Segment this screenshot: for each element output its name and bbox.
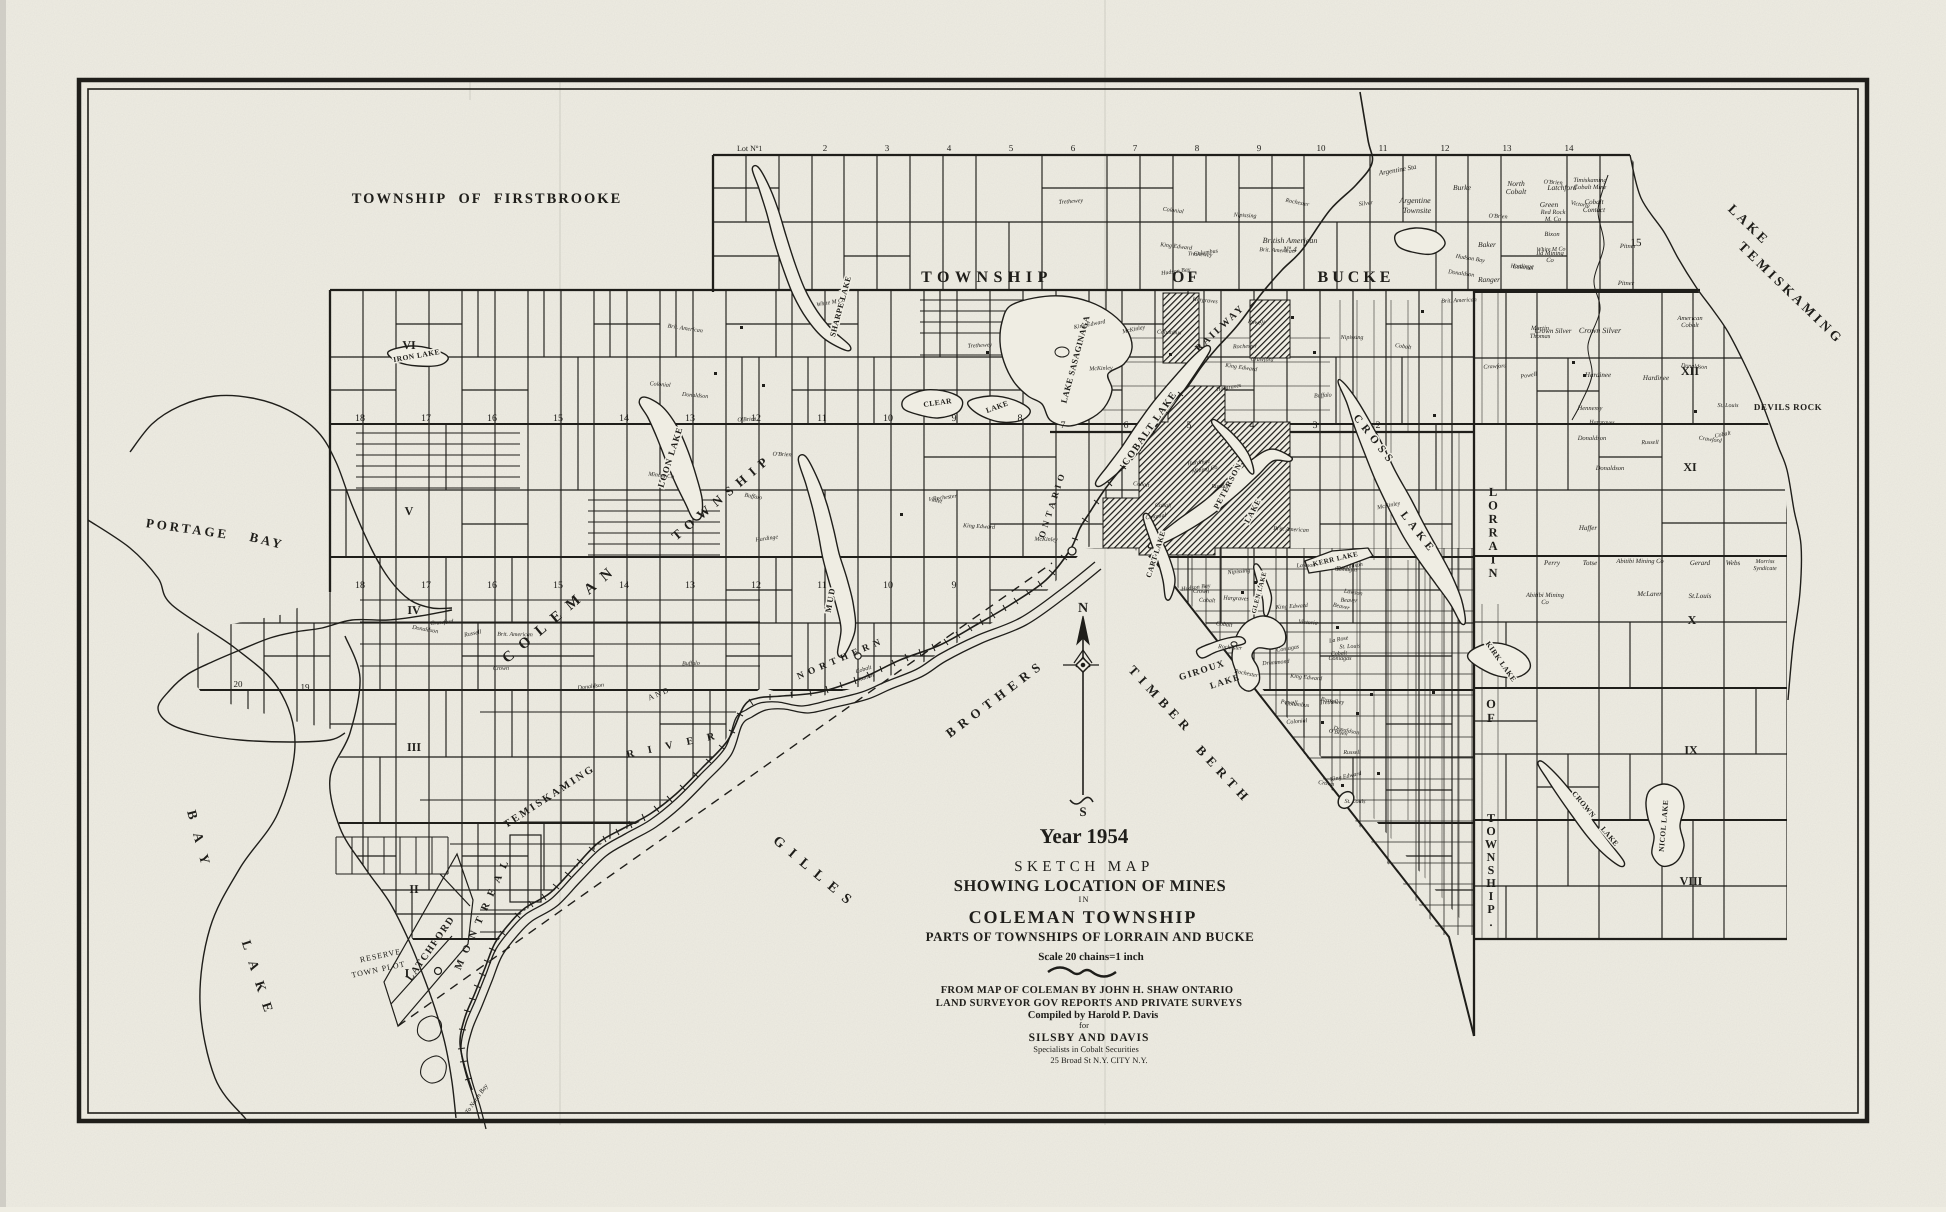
svg-text:18: 18 — [355, 580, 365, 591]
svg-text:Co: Co — [1541, 599, 1549, 606]
svg-text:F: F — [1487, 711, 1495, 725]
svg-text:4: 4 — [947, 143, 952, 153]
svg-text:S: S — [1488, 863, 1495, 877]
svg-text:Haffer: Haffer — [1578, 524, 1598, 532]
svg-text:Specialists in Cobalt Securiti: Specialists in Cobalt Securities — [1033, 1044, 1139, 1054]
svg-text:BUCKE: BUCKE — [1318, 269, 1395, 286]
svg-text:Morriss: Morriss — [1754, 559, 1775, 565]
svg-text:PARTS OF TOWNSHIPS OF LORRAIN: PARTS OF TOWNSHIPS OF LORRAIN AND BUCKE — [926, 929, 1255, 944]
svg-text:Gerard: Gerard — [1690, 559, 1711, 567]
svg-text:S: S — [1079, 804, 1086, 819]
svg-text:2: 2 — [1376, 420, 1381, 431]
svg-text:Co: Co — [1546, 257, 1554, 264]
svg-text:Donaldson: Donaldson — [1577, 435, 1607, 442]
svg-text:Lawson: Lawson — [1296, 563, 1316, 570]
svg-text:TOWNSHIP: TOWNSHIP — [921, 269, 1053, 286]
svg-text:Bixon: Bixon — [1544, 231, 1559, 238]
svg-text:5: 5 — [1187, 420, 1192, 431]
svg-text:SKETCH MAP: SKETCH MAP — [1014, 859, 1154, 875]
svg-text:Abitibi Mining: Abitibi Mining — [1525, 592, 1565, 599]
svg-text:Nº 4: Nº 4 — [1282, 245, 1297, 254]
svg-text:25 Broad St N.Y. CITY N.Y.: 25 Broad St N.Y. CITY N.Y. — [1050, 1055, 1147, 1065]
svg-text:Crawford: Crawford — [1483, 362, 1507, 370]
svg-text:Lot Nº1: Lot Nº1 — [737, 144, 762, 153]
svg-text:Scale 20 chains=1 inch: Scale 20 chains=1 inch — [1038, 951, 1144, 963]
svg-text:for: for — [1079, 1020, 1089, 1030]
svg-text:17: 17 — [421, 413, 431, 424]
svg-text:X: X — [1688, 613, 1697, 627]
svg-text:14: 14 — [619, 413, 629, 424]
svg-text:11: 11 — [817, 413, 827, 424]
svg-text:Cobalt: Cobalt — [1506, 187, 1527, 196]
svg-text:O: O — [1486, 697, 1496, 711]
svg-text:O'Brien: O'Brien — [737, 416, 756, 423]
svg-text:N: N — [1487, 850, 1496, 864]
svg-text:I: I — [1491, 553, 1496, 567]
svg-text:Rochester: Rochester — [1232, 343, 1258, 351]
svg-text:Pitner: Pitner — [1619, 243, 1637, 250]
svg-text:R: R — [1488, 526, 1498, 540]
svg-text:9: 9 — [952, 580, 957, 591]
svg-text:Argentine: Argentine — [1398, 196, 1431, 205]
svg-text:N: N — [1078, 601, 1088, 616]
svg-text:Contact: Contact — [1583, 206, 1606, 214]
svg-text:7: 7 — [1133, 143, 1138, 153]
svg-text:10: 10 — [883, 413, 893, 424]
svg-text:5: 5 — [1009, 143, 1014, 153]
svg-text:Compiled by Harold P. Davis: Compiled by Harold P. Davis — [1028, 1010, 1158, 1021]
svg-text:19: 19 — [301, 682, 311, 692]
svg-text:11: 11 — [817, 580, 827, 591]
svg-text:Buffalo: Buffalo — [1314, 391, 1332, 399]
svg-text:R: R — [1488, 512, 1498, 526]
svg-text:7: 7 — [1061, 420, 1066, 431]
svg-text:Pitner: Pitner — [1617, 280, 1635, 287]
svg-text:Baker: Baker — [1478, 240, 1496, 249]
svg-text:12: 12 — [751, 580, 761, 591]
svg-text:Latchford: Latchford — [1546, 183, 1577, 192]
svg-text:Year 1954: Year 1954 — [1040, 824, 1129, 848]
svg-text:Coniagas: Coniagas — [1328, 656, 1352, 662]
svg-text:McKinley: McKinley — [1088, 365, 1113, 373]
svg-text:M. Co: M. Co — [1544, 216, 1562, 223]
svg-text:Trethewey: Trethewey — [968, 341, 993, 349]
svg-text:Perry: Perry — [1543, 559, 1561, 567]
svg-text:Russell: Russell — [1342, 749, 1361, 756]
svg-text:16: 16 — [487, 413, 497, 424]
svg-text:II: II — [409, 882, 419, 896]
svg-text:SILSBY AND DAVIS: SILSBY AND DAVIS — [1029, 1032, 1150, 1044]
svg-text:Cobalt: Cobalt — [1584, 198, 1604, 206]
svg-text:British American: British American — [1263, 236, 1318, 245]
svg-text:COLEMAN TOWNSHIP: COLEMAN TOWNSHIP — [969, 907, 1198, 927]
svg-text:13: 13 — [1503, 143, 1513, 153]
svg-text:Hennessy: Hennessy — [1577, 405, 1603, 412]
svg-text:Webs: Webs — [1726, 559, 1741, 567]
svg-text:W: W — [1485, 837, 1497, 851]
svg-text:Syndicate: Syndicate — [1753, 565, 1777, 572]
svg-text:3: 3 — [1313, 420, 1318, 431]
svg-text:Coniagas: Coniagas — [1334, 567, 1358, 574]
svg-text:Townsite: Townsite — [1403, 206, 1432, 215]
svg-text:I: I — [405, 966, 410, 980]
svg-text:L: L — [1489, 485, 1497, 499]
svg-text:McLaren: McLaren — [1636, 590, 1663, 598]
svg-text:9: 9 — [952, 413, 957, 424]
svg-text:Crown Silver: Crown Silver — [1535, 327, 1572, 335]
svg-text:St. Louis: St. Louis — [1339, 643, 1361, 650]
svg-text:H: H — [1486, 876, 1496, 890]
svg-text:15: 15 — [553, 580, 563, 591]
svg-text:Russell: Russell — [1210, 483, 1229, 490]
svg-text:14: 14 — [1565, 143, 1575, 153]
svg-text:Green: Green — [1540, 200, 1559, 209]
svg-text:Burke: Burke — [1453, 183, 1472, 192]
svg-text:Timiskaming: Timiskaming — [1573, 177, 1607, 184]
svg-text:12: 12 — [1441, 143, 1450, 153]
svg-text:V: V — [405, 504, 414, 518]
svg-text:13: 13 — [685, 580, 695, 591]
svg-text:18: 18 — [355, 413, 365, 424]
svg-text:Cobalt: Cobalt — [1681, 322, 1699, 329]
svg-text:Buffalo: Buffalo — [682, 660, 700, 667]
svg-text:T: T — [1487, 811, 1495, 825]
svg-text:Cobalt Mine: Cobalt Mine — [1574, 184, 1607, 191]
svg-text:Trethewey: Trethewey — [1320, 699, 1345, 706]
svg-text:9: 9 — [1257, 143, 1262, 153]
svg-text:10: 10 — [1317, 143, 1327, 153]
svg-text:McKinley: McKinley — [1033, 536, 1058, 544]
svg-text:Crawford: Crawford — [1250, 356, 1274, 364]
svg-text:DEVILS ROCK: DEVILS ROCK — [1754, 402, 1822, 412]
svg-text:Crown: Crown — [493, 666, 509, 672]
svg-text:VI: VI — [402, 338, 416, 352]
svg-text:Hardinee: Hardinee — [1642, 374, 1669, 382]
svg-text:Columbus: Columbus — [1157, 329, 1182, 337]
svg-text:I: I — [1489, 889, 1494, 903]
svg-text:Donaldson: Donaldson — [1595, 465, 1625, 472]
svg-text:TOWNSHIP OF FIRSTBROOKE: TOWNSHIP OF FIRSTBROOKE — [352, 191, 623, 207]
svg-text:N: N — [1488, 566, 1497, 580]
svg-text:IV: IV — [407, 603, 421, 617]
svg-text:FROM MAP OF COLEMAN BY JOHN H.: FROM MAP OF COLEMAN BY JOHN H. SHAW ONTA… — [941, 985, 1234, 996]
svg-text:Hardinge: Hardinge — [1510, 263, 1534, 271]
svg-text:16: 16 — [487, 580, 497, 591]
svg-text:VIII: VIII — [1680, 874, 1703, 888]
svg-text:14: 14 — [619, 580, 629, 591]
svg-text:3: 3 — [885, 143, 890, 153]
svg-text:13: 13 — [685, 413, 695, 424]
svg-text:O'Brien: O'Brien — [1488, 214, 1507, 221]
svg-text:St. Louis: St. Louis — [1717, 403, 1739, 409]
svg-text:LAND SURVEYOR GOV REPORTS AN: LAND SURVEYOR GOV REPORTS AND PRIVATE SU… — [936, 998, 1242, 1009]
svg-text:A: A — [1488, 539, 1497, 553]
svg-text:4: 4 — [1250, 420, 1255, 431]
svg-text:6: 6 — [1124, 420, 1129, 431]
svg-text:Crown: Crown — [1193, 589, 1209, 595]
svg-text:Abitibi Mining Co: Abitibi Mining Co — [1615, 558, 1664, 565]
svg-text:Hargraves: Hargraves — [1588, 420, 1615, 426]
svg-text:American: American — [1676, 315, 1702, 322]
svg-text:11: 11 — [1379, 143, 1388, 153]
svg-text:Ranger: Ranger — [1477, 275, 1500, 284]
svg-text:SHOWING LOCATION OF MINES: SHOWING LOCATION OF MINES — [954, 876, 1226, 895]
svg-text:O: O — [1488, 499, 1498, 513]
svg-text:IX: IX — [1684, 743, 1698, 757]
svg-text:17: 17 — [421, 580, 431, 591]
svg-text:8: 8 — [1018, 413, 1023, 424]
svg-text:10: 10 — [883, 580, 893, 591]
svg-text:Totse: Totse — [1583, 559, 1598, 567]
svg-text:Cobalt: Cobalt — [1155, 502, 1172, 510]
svg-text:IN: IN — [1079, 894, 1090, 904]
svg-text:20: 20 — [234, 679, 244, 689]
svg-text:Nipissing: Nipissing — [1340, 335, 1364, 341]
svg-text:Russell: Russell — [1640, 439, 1659, 446]
svg-text:XI: XI — [1683, 460, 1697, 474]
svg-text:2: 2 — [823, 143, 828, 153]
svg-text:.: . — [1490, 915, 1493, 929]
svg-text:Crown Silver: Crown Silver — [1579, 326, 1622, 335]
svg-text:O'Brien: O'Brien — [772, 452, 791, 459]
svg-text:Red Rock: Red Rock — [1540, 209, 1566, 216]
svg-text:St.Louis: St.Louis — [1689, 592, 1712, 600]
svg-text:Ild Mining: Ild Mining — [1535, 250, 1564, 257]
svg-text:15: 15 — [553, 413, 563, 424]
svg-text:St. Louis: St. Louis — [1344, 799, 1366, 805]
svg-text:Hardinee: Hardinee — [1584, 371, 1611, 379]
svg-text:Brit. American: Brit. American — [497, 632, 533, 638]
svg-text:8: 8 — [1195, 143, 1200, 153]
svg-text:O: O — [1486, 824, 1495, 838]
svg-text:III: III — [407, 740, 421, 754]
svg-text:Cobalt: Cobalt — [1199, 597, 1216, 605]
svg-text:P: P — [1487, 902, 1494, 916]
svg-text:6: 6 — [1071, 143, 1076, 153]
